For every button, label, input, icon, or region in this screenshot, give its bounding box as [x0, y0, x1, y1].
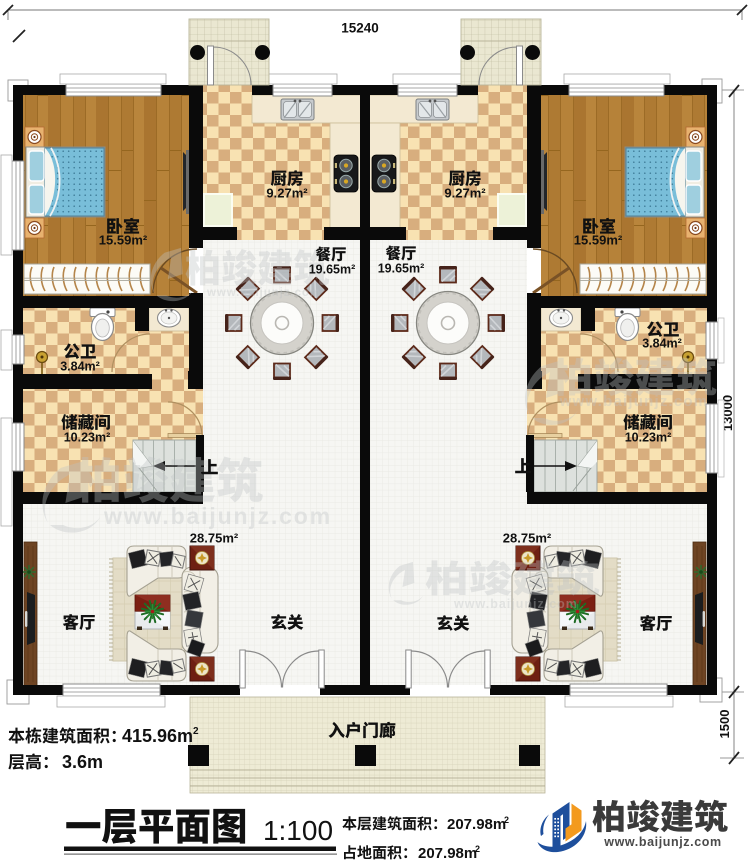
svg-text:3.6m: 3.6m: [62, 752, 103, 772]
svg-text:9.27m²: 9.27m²: [444, 186, 486, 201]
svg-text:28.75m²: 28.75m²: [190, 531, 239, 546]
svg-text:2: 2: [193, 726, 199, 737]
svg-text:1500: 1500: [717, 710, 732, 739]
svg-text:www.baijunjz.com: www.baijunjz.com: [603, 835, 721, 849]
svg-text:www.baijunjz.com: www.baijunjz.com: [559, 393, 709, 410]
svg-text:2: 2: [475, 844, 480, 854]
svg-text:www.baijunjz.com: www.baijunjz.com: [453, 597, 578, 611]
svg-text:10.23m²: 10.23m²: [625, 431, 672, 445]
svg-text:www.baijunjz.com: www.baijunjz.com: [206, 287, 321, 299]
svg-text:207.98m: 207.98m: [418, 845, 477, 862]
svg-text:15.59m²: 15.59m²: [99, 233, 148, 248]
svg-text:3.84m²: 3.84m²: [60, 360, 100, 374]
svg-text:10.23m²: 10.23m²: [64, 431, 111, 445]
svg-text:www.baijunjz.com: www.baijunjz.com: [103, 503, 332, 529]
svg-text:19.65m²: 19.65m²: [378, 262, 425, 276]
svg-text:15.59m²: 15.59m²: [574, 233, 623, 248]
svg-text:9.27m²: 9.27m²: [266, 186, 308, 201]
svg-text:2: 2: [504, 815, 509, 825]
svg-text:15240: 15240: [341, 21, 379, 36]
svg-text:207.98m: 207.98m: [447, 816, 506, 833]
svg-text:415.96m: 415.96m: [122, 726, 193, 746]
svg-text:28.75m²: 28.75m²: [503, 531, 552, 546]
svg-text:19.65m²: 19.65m²: [309, 263, 356, 277]
svg-text:3.84m²: 3.84m²: [642, 337, 682, 351]
svg-text:1:100: 1:100: [263, 815, 333, 846]
